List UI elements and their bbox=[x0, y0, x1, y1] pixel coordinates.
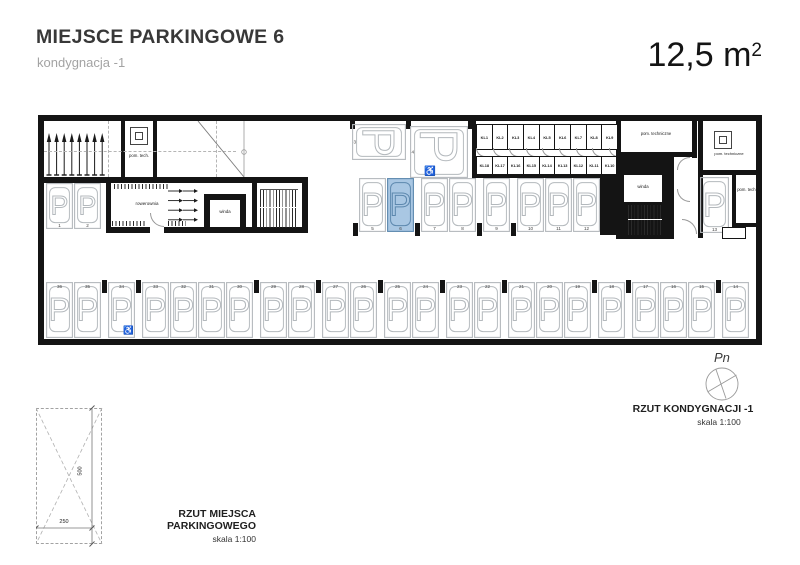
dimension-height: 500 bbox=[78, 466, 84, 475]
space-number: 29 bbox=[260, 284, 287, 289]
space-number: 17 bbox=[632, 284, 659, 289]
space-number: 7 bbox=[421, 226, 448, 231]
storage-locker-kl6: KL6 bbox=[555, 125, 570, 149]
space-number: 9 bbox=[483, 226, 510, 231]
parking-space-33: P33 bbox=[142, 282, 169, 338]
storage-locker-kl7: KL7 bbox=[571, 125, 586, 149]
svg-text:P: P bbox=[79, 191, 97, 221]
space-number: 14 bbox=[722, 284, 749, 289]
room-label-pom-tech: pom. tech. bbox=[733, 188, 761, 193]
svg-text:P: P bbox=[229, 292, 251, 328]
parking-plan-sheet: { "header": { "title": "MIEJSCE PARKINGO… bbox=[0, 0, 800, 565]
parking-row-right: P13 bbox=[700, 177, 729, 233]
space-number: 2 bbox=[74, 223, 101, 228]
svg-text:P: P bbox=[111, 292, 133, 328]
page-title: MIEJSCE PARKINGOWE 6 bbox=[36, 26, 284, 49]
space-number: 33 bbox=[142, 284, 169, 289]
stairs bbox=[628, 205, 662, 235]
svg-text:P: P bbox=[387, 292, 409, 328]
stairs bbox=[260, 189, 298, 228]
area-exponent: 2 bbox=[751, 40, 762, 61]
svg-text:P: P bbox=[477, 292, 499, 328]
storage-locker-kl2: KL2 bbox=[493, 125, 508, 149]
svg-text:P: P bbox=[263, 292, 285, 328]
storage-locker-kl4: KL4 bbox=[524, 125, 539, 149]
parking-space-29: P29 bbox=[260, 282, 287, 338]
column-pillar bbox=[626, 280, 631, 293]
space-number: 20 bbox=[536, 284, 563, 289]
detail-caption: RZUT MIEJSCA PARKINGOWEGO bbox=[100, 508, 256, 532]
parking-space-31: P31 bbox=[198, 282, 225, 338]
space-number: 26 bbox=[350, 284, 377, 289]
parking-space-17: P17 bbox=[632, 282, 659, 338]
wheelchair-icon: ♿ bbox=[123, 325, 134, 336]
parking-row-left: P1P2 bbox=[46, 183, 101, 229]
dashed-guide bbox=[108, 121, 109, 177]
space-number: 12 bbox=[573, 226, 600, 231]
area-number: 12,5 m bbox=[647, 36, 751, 74]
detail-scale: skala 1:100 bbox=[100, 534, 256, 544]
svg-text:P: P bbox=[201, 292, 223, 328]
wall-left bbox=[38, 115, 44, 345]
column-pillar bbox=[716, 280, 721, 293]
column-pillar bbox=[353, 223, 358, 236]
parking-space-detail: 500 250 RZUT MIEJSCA PARKINGOWEGO skala … bbox=[36, 400, 266, 550]
door-arc bbox=[150, 213, 164, 227]
space-number: 25 bbox=[384, 284, 411, 289]
wall-pomtech-right bbox=[153, 121, 157, 183]
svg-text:P: P bbox=[548, 187, 570, 223]
wall-pt2-left bbox=[732, 175, 736, 227]
floor-plan: pom. tech. rowerownia winda P3P4♿ KL bbox=[38, 115, 762, 345]
storage-locker-kl5: KL5 bbox=[540, 125, 555, 149]
wall-stair-left bbox=[252, 177, 257, 233]
plan-caption-title: RZUT KONDYGNACJI -1 bbox=[630, 403, 756, 415]
north-label: Pn bbox=[714, 350, 730, 365]
dimension-width: 250 bbox=[48, 519, 80, 525]
space-number: 10 bbox=[517, 226, 544, 231]
space-number: 11 bbox=[545, 226, 572, 231]
room-label-pom-techniczne: pom. techniczne bbox=[623, 132, 689, 137]
parking-space-11: P11 bbox=[545, 178, 572, 232]
wall-bottom bbox=[38, 339, 762, 345]
storage-locker-kl13: KL13 bbox=[555, 157, 570, 174]
parking-space-35: P35 bbox=[74, 282, 101, 338]
svg-text:P: P bbox=[576, 187, 598, 223]
door-arc bbox=[682, 219, 697, 234]
wheelchair-icon: ♿ bbox=[424, 166, 436, 177]
space-number: 22 bbox=[474, 284, 501, 289]
parking-space-3: P3 bbox=[352, 124, 406, 160]
north-compass-icon bbox=[704, 366, 740, 402]
space-number: 15 bbox=[688, 284, 715, 289]
column-pillar bbox=[415, 223, 420, 236]
parking-space-21: P21 bbox=[508, 282, 535, 338]
north-label-text: Pn bbox=[714, 350, 730, 365]
svg-text:P: P bbox=[415, 292, 437, 328]
parking-space-9: P9 bbox=[483, 178, 510, 232]
svg-text:P: P bbox=[663, 292, 685, 328]
wall-farright-mid bbox=[698, 170, 762, 175]
bike-stand-arrows bbox=[166, 187, 200, 225]
column-pillar bbox=[440, 280, 445, 293]
space-number: 1 bbox=[46, 223, 73, 228]
storage-locker-kl9: KL9 bbox=[602, 125, 617, 149]
column-pillar bbox=[511, 223, 516, 236]
equipment-symbol bbox=[130, 127, 148, 145]
parking-space-13: P13 bbox=[700, 177, 729, 233]
parking-space-20: P20 bbox=[536, 282, 563, 338]
storage-locker-kl12: KL12 bbox=[571, 157, 586, 174]
svg-text:P: P bbox=[353, 292, 375, 328]
space-number: 8 bbox=[449, 226, 476, 231]
space-number: 35 bbox=[74, 284, 101, 289]
svg-text:P: P bbox=[511, 292, 533, 328]
storage-locker-kl16: KL16 bbox=[508, 157, 523, 174]
parking-row-bottom: P36P35P34♿P33P32P31P30P29P28P27P26P25P24… bbox=[46, 282, 749, 338]
parking-space-19: P19 bbox=[564, 282, 591, 338]
room-label-pom-tech: pom. tech. bbox=[122, 154, 156, 159]
storage-locker-kl8: KL8 bbox=[587, 125, 602, 149]
space-number: 23 bbox=[446, 284, 473, 289]
svg-text:P: P bbox=[353, 127, 404, 157]
svg-text:P: P bbox=[77, 292, 99, 328]
wall-right bbox=[756, 115, 762, 345]
storage-locker-kl14: KL14 bbox=[540, 157, 555, 174]
space-number: 3 bbox=[354, 140, 357, 145]
area-value: 12,5 m2 bbox=[560, 36, 762, 75]
parking-space-14: P14 bbox=[722, 282, 749, 338]
space-number: 24 bbox=[412, 284, 439, 289]
plan-caption-block: Pn RZUT KONDYGNACJI -1 skala 1:100 bbox=[630, 350, 756, 440]
column-pillar bbox=[477, 223, 482, 236]
svg-text:P: P bbox=[449, 292, 471, 328]
space-number: 34 bbox=[108, 284, 135, 289]
svg-text:P: P bbox=[691, 292, 713, 328]
svg-text:P: P bbox=[424, 187, 446, 223]
space-number: 6 bbox=[387, 226, 414, 231]
storage-locker-kl3: KL3 bbox=[508, 125, 523, 149]
parking-space-23: P23 bbox=[446, 282, 473, 338]
svg-text:P: P bbox=[291, 292, 313, 328]
storage-locker-kl10: KL10 bbox=[602, 157, 617, 174]
column-pillar bbox=[592, 280, 597, 293]
space-number: 21 bbox=[508, 284, 535, 289]
door-arc bbox=[677, 157, 690, 170]
ramp bbox=[158, 121, 306, 177]
parking-space-15: P15 bbox=[688, 282, 715, 338]
column-pillar bbox=[136, 280, 141, 293]
wall-between-row-core bbox=[600, 177, 616, 235]
parking-space-16: P16 bbox=[660, 282, 687, 338]
svg-text:P: P bbox=[601, 292, 623, 328]
parking-space-18: P18 bbox=[598, 282, 625, 338]
storage-locker-kl11: KL11 bbox=[587, 157, 602, 174]
space-number: 27 bbox=[322, 284, 349, 289]
storage-locker-kl1: KL1 bbox=[477, 125, 492, 149]
svg-text:P: P bbox=[51, 191, 69, 221]
space-number: 30 bbox=[226, 284, 253, 289]
stairs-rail bbox=[260, 207, 298, 208]
parking-space-30: P30 bbox=[226, 282, 253, 338]
wall-ptc1-right bbox=[692, 121, 697, 158]
locker-row-top: KL1KL2KL3KL4KL5KL6KL7KL8KL9 bbox=[476, 124, 618, 150]
space-number: 5 bbox=[359, 226, 386, 231]
storage-locker-kl18: KL18 bbox=[477, 157, 492, 174]
space-number: 31 bbox=[198, 284, 225, 289]
wall-stair-right bbox=[302, 177, 308, 233]
svg-text:P: P bbox=[173, 292, 195, 328]
parking-space-4: P4♿ bbox=[410, 126, 468, 178]
svg-text:P: P bbox=[486, 187, 508, 223]
column-pillar bbox=[502, 280, 507, 293]
parking-space-32: P32 bbox=[170, 282, 197, 338]
parking-row-middle: P5P6P7P8P9P10P11P12 bbox=[353, 178, 600, 232]
room-label-pom-techniczne: pom. techniczne bbox=[702, 152, 756, 156]
svg-text:P: P bbox=[725, 292, 747, 328]
locker-door-arcs bbox=[476, 148, 616, 156]
parking-space-24: P24 bbox=[412, 282, 439, 338]
space-number: 18 bbox=[598, 284, 625, 289]
parking-space-28: P28 bbox=[288, 282, 315, 338]
svg-text:P: P bbox=[145, 292, 167, 328]
column-pillar bbox=[102, 280, 107, 293]
svg-text:P: P bbox=[362, 187, 384, 223]
column-pillar bbox=[378, 280, 383, 293]
space-number: 28 bbox=[288, 284, 315, 289]
bike-rack-hatch bbox=[112, 221, 146, 226]
svg-text:P: P bbox=[410, 128, 467, 163]
parking-space-10: P10 bbox=[517, 178, 544, 232]
parking-space-1: P1 bbox=[46, 183, 73, 229]
storage-locker-kl15: KL15 bbox=[524, 157, 539, 174]
floor-subtitle: kondygnacja -1 bbox=[37, 55, 125, 70]
parking-space-2: P2 bbox=[74, 183, 101, 229]
wall-top bbox=[38, 115, 762, 121]
svg-text:P: P bbox=[390, 187, 412, 223]
parking-space-5: P5 bbox=[359, 178, 386, 232]
wall-rowerownia-left bbox=[106, 177, 111, 233]
space-number: 16 bbox=[660, 284, 687, 289]
parking-space-7: P7 bbox=[421, 178, 448, 232]
locker-row-bottom: KL18KL17KL16KL15KL14KL13KL12KL11KL10 bbox=[476, 156, 618, 175]
space-number: 19 bbox=[564, 284, 591, 289]
parking-space-8: P8 bbox=[449, 178, 476, 232]
rack-arrows bbox=[45, 131, 107, 178]
space-number: 32 bbox=[170, 284, 197, 289]
parking-space-27: P27 bbox=[322, 282, 349, 338]
room-label-winda: winda bbox=[210, 210, 240, 215]
svg-text:P: P bbox=[325, 292, 347, 328]
svg-text:P: P bbox=[520, 187, 542, 223]
stairs-rail bbox=[628, 219, 662, 220]
storage-locker-kl17: KL17 bbox=[493, 157, 508, 174]
wall-rowerownia-bottom-a bbox=[106, 227, 150, 233]
parking-row-horizontal: P3P4♿ bbox=[352, 124, 468, 180]
plan-caption-scale: skala 1:100 bbox=[676, 417, 762, 427]
parking-space-25: P25 bbox=[384, 282, 411, 338]
svg-text:P: P bbox=[49, 292, 71, 328]
parking-space-34: P34♿ bbox=[108, 282, 135, 338]
equipment-symbol bbox=[714, 131, 732, 149]
svg-text:P: P bbox=[539, 292, 561, 328]
column-pillar bbox=[254, 280, 259, 293]
room-label-winda: winda bbox=[624, 185, 662, 190]
svg-text:P: P bbox=[567, 292, 589, 328]
parking-space-12: P12 bbox=[573, 178, 600, 232]
bike-rack-hatch bbox=[114, 184, 170, 189]
parking-space-26: P26 bbox=[350, 282, 377, 338]
svg-text:P: P bbox=[635, 292, 657, 328]
svg-text:P: P bbox=[703, 186, 726, 224]
column-pillar bbox=[316, 280, 321, 293]
parking-space-36: P36 bbox=[46, 282, 73, 338]
wall-pomtech-left bbox=[121, 121, 125, 183]
svg-text:P: P bbox=[452, 187, 474, 223]
parking-space-6: P6 bbox=[387, 178, 414, 232]
space-number: 36 bbox=[46, 284, 73, 289]
parking-space-22: P22 bbox=[474, 282, 501, 338]
space-number: 4 bbox=[412, 150, 415, 155]
door-arc bbox=[677, 189, 690, 202]
vestibule-box bbox=[722, 227, 746, 239]
